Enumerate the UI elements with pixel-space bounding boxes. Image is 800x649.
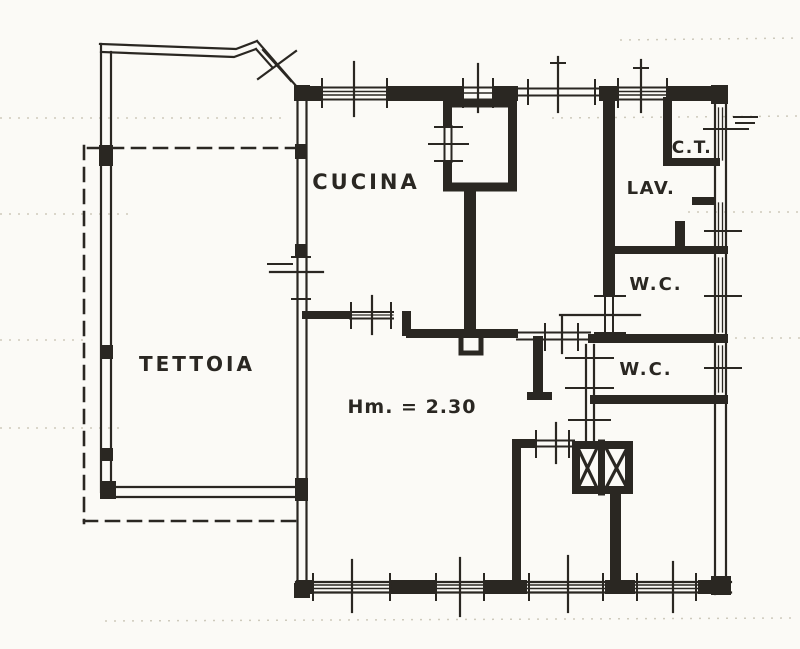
middle-room-walls <box>512 423 574 593</box>
tettoia-structure <box>84 41 300 523</box>
tettoia-dashed-boundary <box>84 146 296 523</box>
kitchen-closet <box>429 103 513 187</box>
ceiling-height-annotation: Hm. = 2.30 <box>348 396 477 418</box>
wall-post <box>100 345 113 359</box>
living-room-divider <box>302 296 518 353</box>
window-symbol-hall <box>517 316 590 353</box>
room-label-ct: C.T. <box>672 138 712 158</box>
wall-post <box>100 448 113 461</box>
window-symbol-top-c <box>618 60 667 112</box>
shaft-x-box <box>572 441 633 494</box>
hallway-l-wall <box>527 336 552 400</box>
corner-node <box>711 85 728 104</box>
door-symbol-corridor <box>566 345 613 441</box>
scan-noise <box>0 38 800 621</box>
window-symbol-bottom-a <box>312 560 391 612</box>
window-symbol-right-wc-upper <box>705 258 741 332</box>
room-label-wc-lower: W.C. <box>619 359 672 380</box>
tettoia-roof-edge <box>100 41 297 87</box>
room-label-lav: LAV. <box>627 178 676 199</box>
window-symbol-bottom-d <box>635 562 698 612</box>
window-symbol-right-wc-lower <box>705 346 741 392</box>
wc-upper-bottom-wall <box>588 334 728 343</box>
wc-lower-bottom-wall <box>590 395 728 404</box>
window-symbol-right-lav <box>705 203 741 248</box>
window-symbol-top-a <box>322 62 387 116</box>
wall-post <box>295 144 307 159</box>
wall-kitchen-hall <box>464 187 476 334</box>
wall-below-shaft <box>610 492 621 592</box>
floor-plan-scan: TETTOIA CUCINA C.T. LAV. W.C. W.C. Hm. =… <box>0 0 800 649</box>
thin-wall-section-top <box>517 57 601 112</box>
wall-post <box>99 145 113 166</box>
door-jamb-notch <box>461 338 481 353</box>
lav-stub-wall-h <box>692 197 716 205</box>
room-label-cucina: CUCINA <box>312 170 420 194</box>
window-symbol-left <box>268 257 323 299</box>
wall-post <box>295 478 308 501</box>
room-label-wc-upper: W.C. <box>629 274 682 295</box>
window-symbol-bottom-b <box>435 558 485 616</box>
wc-upper-top-wall <box>611 246 728 254</box>
wall-kitchen-lav <box>560 97 640 335</box>
roof-x-mark <box>258 50 296 81</box>
tettoia-west-wall <box>99 44 116 499</box>
room-labels: TETTOIA CUCINA C.T. LAV. W.C. W.C. Hm. =… <box>139 138 712 418</box>
wall-post <box>295 244 307 256</box>
floor-plan-drawing: TETTOIA CUCINA C.T. LAV. W.C. W.C. Hm. =… <box>0 0 800 649</box>
corner-node <box>294 85 310 101</box>
room-label-tettoia: TETTOIA <box>139 352 255 376</box>
window-symbol-bottom-c <box>527 556 605 612</box>
tettoia-bottom-wall <box>104 487 300 497</box>
